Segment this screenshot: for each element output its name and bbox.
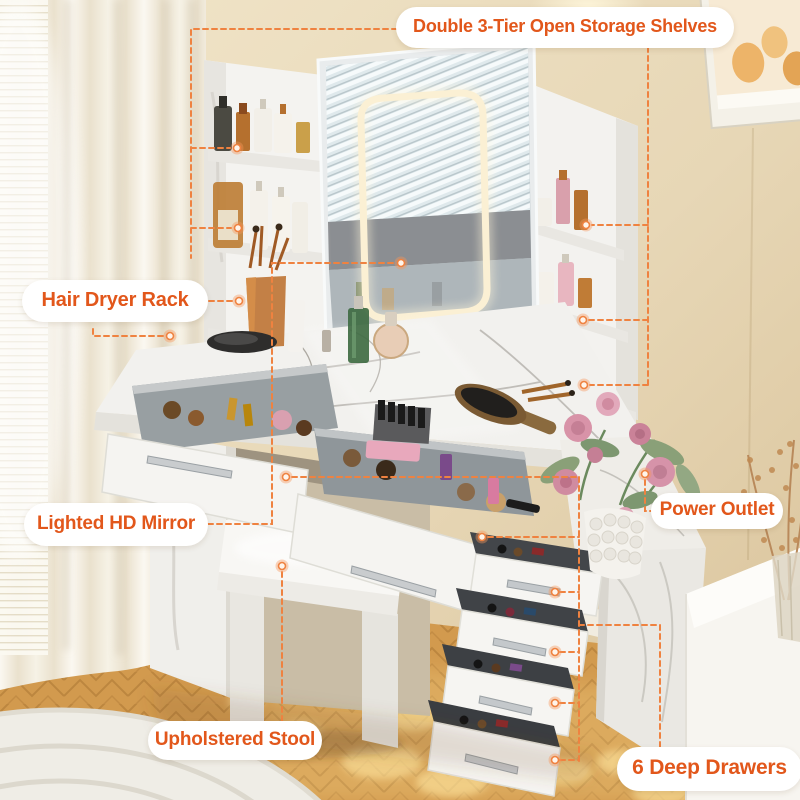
callout-lighted-mirror-label: Lighted HD Mirror bbox=[37, 513, 195, 535]
callout-hair-dryer-rack: Hair Dryer Rack bbox=[22, 280, 208, 322]
callout-upholstered-stool: Upholstered Stool bbox=[148, 721, 322, 760]
callout-shelves: Double 3-Tier Open Storage Shelves bbox=[396, 7, 734, 48]
white-tube bbox=[288, 300, 306, 353]
callout-upholstered-stool-label: Upholstered Stool bbox=[155, 729, 315, 751]
vanity-mirror bbox=[318, 40, 538, 340]
bobble-vase bbox=[584, 508, 646, 579]
product-image: Double 3-Tier Open Storage Shelves Hair … bbox=[0, 0, 800, 800]
scene bbox=[0, 0, 800, 800]
callout-deep-drawers-label: 6 Deep Drawers bbox=[632, 756, 787, 780]
callout-lighted-mirror: Lighted HD Mirror bbox=[24, 503, 208, 546]
callout-power-outlet: Power Outlet bbox=[651, 493, 783, 529]
callout-shelves-label: Double 3-Tier Open Storage Shelves bbox=[413, 16, 717, 37]
callout-deep-drawers: 6 Deep Drawers bbox=[617, 747, 800, 791]
callout-power-outlet-label: Power Outlet bbox=[660, 499, 775, 521]
callout-hair-dryer-rack-label: Hair Dryer Rack bbox=[41, 289, 188, 312]
